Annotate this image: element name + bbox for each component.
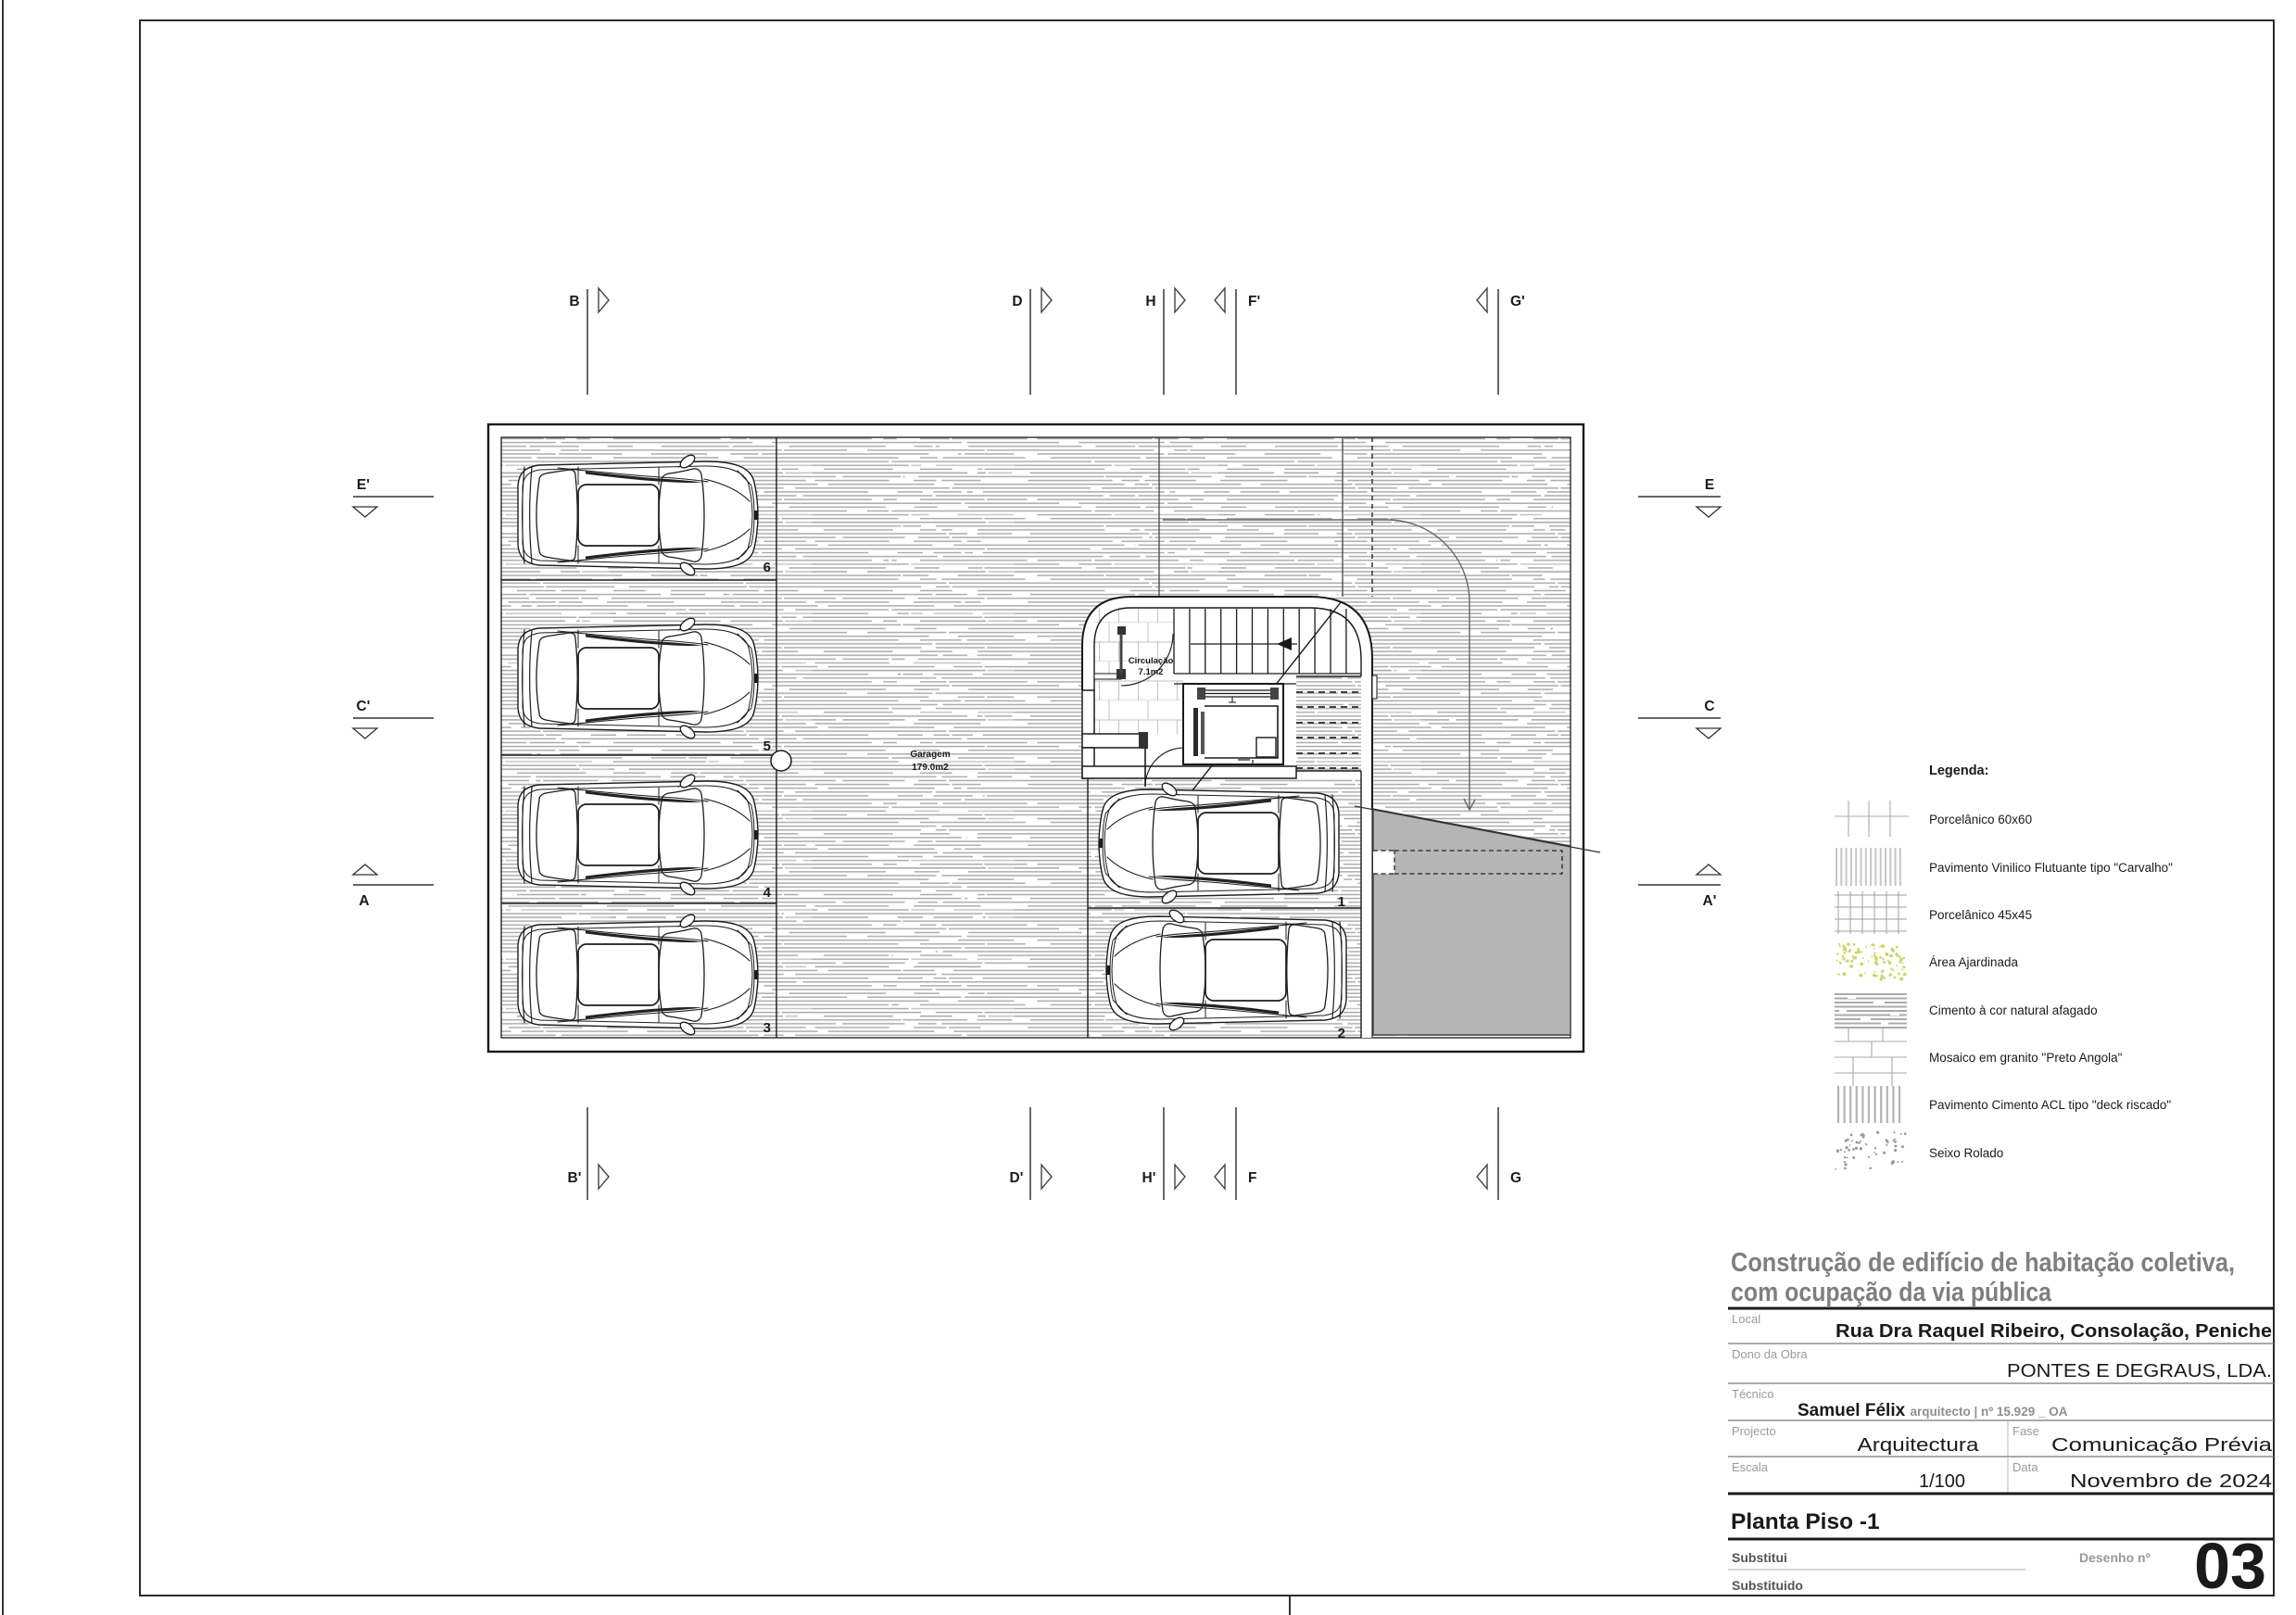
- svg-text:Técnico: Técnico: [1732, 1387, 1774, 1401]
- svg-text:Projecto: Projecto: [1732, 1424, 1776, 1438]
- svg-text:Legenda:: Legenda:: [1929, 763, 1988, 778]
- svg-text:03: 03: [2194, 1530, 2266, 1602]
- svg-text:7.1m2: 7.1m2: [1139, 667, 1164, 677]
- svg-text:Samuel Félix arquitecto | nº 1: Samuel Félix arquitecto | nº 15.929 _ OA: [1798, 1401, 2068, 1420]
- svg-text:com ocupação da via pública: com ocupação da via pública: [1731, 1278, 2052, 1307]
- svg-text:C': C': [357, 699, 371, 714]
- svg-text:4: 4: [763, 885, 772, 901]
- svg-text:B': B': [568, 1170, 582, 1186]
- svg-text:A: A: [359, 893, 369, 909]
- svg-text:Escala: Escala: [1732, 1460, 1769, 1474]
- svg-text:H': H': [1142, 1170, 1156, 1186]
- svg-text:Pavimento Cimento ACL tipo "de: Pavimento Cimento ACL tipo "deck riscado…: [1929, 1098, 2171, 1112]
- svg-text:PONTES E DEGRAUS, LDA.: PONTES E DEGRAUS, LDA.: [2007, 1361, 2272, 1382]
- svg-text:Rua Dra Raquel Ribeiro, Consol: Rua Dra Raquel Ribeiro, Consolação, Peni…: [1836, 1321, 2272, 1342]
- svg-text:F: F: [1248, 1170, 1256, 1186]
- svg-text:Porcelânico 45x45: Porcelânico 45x45: [1929, 908, 2032, 922]
- svg-text:D': D': [1010, 1170, 1024, 1186]
- svg-text:Cimento à cor natural afagado: Cimento à cor natural afagado: [1929, 1003, 2098, 1017]
- svg-text:Construção de edifício de habi: Construção de edifício de habitação cole…: [1731, 1248, 2235, 1278]
- svg-text:Comunicação Prévia: Comunicação Prévia: [2051, 1435, 2273, 1456]
- svg-text:Porcelânico 60x60: Porcelânico 60x60: [1929, 813, 2032, 826]
- svg-text:Substituido: Substituido: [1732, 1578, 1803, 1593]
- svg-text:Pavimento Vinilico Flutuante t: Pavimento Vinilico Flutuante tipo "Carva…: [1929, 861, 2173, 875]
- svg-text:Dono da Obra: Dono da Obra: [1732, 1347, 1808, 1361]
- svg-text:1/100: 1/100: [1919, 1471, 1965, 1492]
- svg-text:Seixo Rolado: Seixo Rolado: [1929, 1146, 2003, 1160]
- svg-text:E: E: [1705, 477, 1714, 493]
- svg-text:1: 1: [1338, 894, 1345, 910]
- svg-text:Desenho nº: Desenho nº: [2079, 1550, 2151, 1565]
- svg-text:Data: Data: [2012, 1460, 2038, 1474]
- svg-text:B: B: [569, 294, 579, 309]
- svg-text:Área Ajardinada: Área Ajardinada: [1929, 955, 2019, 969]
- svg-text:Planta Piso -1: Planta Piso -1: [1731, 1509, 1880, 1534]
- svg-text:Circulação: Circulação: [1129, 656, 1174, 666]
- svg-text:G': G': [1510, 294, 1525, 309]
- svg-text:179.0m2: 179.0m2: [912, 763, 949, 773]
- svg-text:Arquitectura: Arquitectura: [1858, 1435, 1980, 1456]
- svg-text:G: G: [1510, 1170, 1521, 1186]
- svg-text:Fase: Fase: [2012, 1424, 2039, 1438]
- svg-text:Substitui: Substitui: [1732, 1550, 1787, 1565]
- svg-text:6: 6: [763, 560, 771, 575]
- svg-text:A': A': [1703, 893, 1717, 909]
- svg-text:H: H: [1145, 294, 1155, 309]
- svg-text:D: D: [1012, 294, 1022, 309]
- svg-text:Local: Local: [1732, 1312, 1760, 1326]
- svg-text:Novembro de 2024: Novembro de 2024: [2070, 1471, 2272, 1492]
- svg-text:E': E': [357, 477, 370, 493]
- svg-text:3: 3: [763, 1020, 771, 1036]
- svg-text:Mosaico em granito "Preto Ango: Mosaico em granito "Preto Angola": [1929, 1051, 2123, 1065]
- svg-text:5: 5: [763, 738, 771, 754]
- svg-text:F': F': [1248, 294, 1260, 309]
- svg-text:Garagem: Garagem: [910, 750, 950, 760]
- svg-text:C: C: [1704, 699, 1714, 714]
- svg-text:2: 2: [1338, 1026, 1345, 1041]
